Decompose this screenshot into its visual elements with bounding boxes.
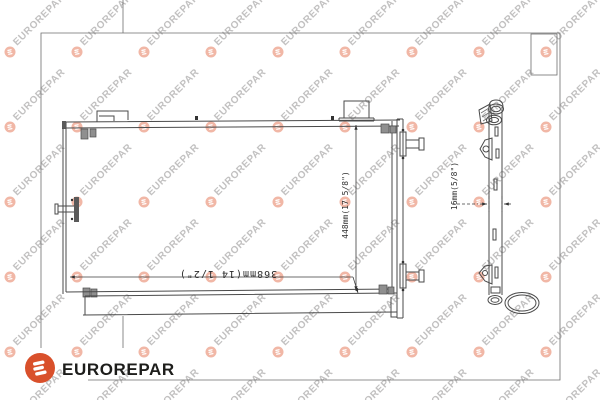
watermark-unit xyxy=(407,367,470,400)
watermark-unit xyxy=(474,0,537,58)
mount-clip xyxy=(81,129,88,139)
side-bracket-upper xyxy=(480,138,492,160)
watermark-unit xyxy=(407,292,470,358)
mount-clip xyxy=(381,124,389,133)
watermark-unit xyxy=(5,142,68,208)
watermark-unit xyxy=(139,292,202,358)
watermark-unit xyxy=(273,142,336,208)
watermark-unit xyxy=(407,217,470,283)
watermark-unit xyxy=(541,217,600,283)
mount-clip xyxy=(379,285,387,294)
watermark-unit xyxy=(206,0,269,58)
top-left-bracket xyxy=(97,111,128,122)
side-view: 16mm(5/8") xyxy=(450,100,539,314)
watermark-unit xyxy=(474,367,537,400)
watermark-unit xyxy=(340,67,403,133)
watermark-layer xyxy=(5,0,600,400)
watermark-unit xyxy=(5,217,68,283)
front-view xyxy=(55,101,424,318)
right-upper-fitting xyxy=(400,129,424,160)
watermark-unit xyxy=(206,292,269,358)
watermark-unit xyxy=(340,367,403,400)
watermark-unit xyxy=(541,0,600,58)
watermark-unit xyxy=(340,0,403,58)
watermark-unit xyxy=(72,67,135,133)
watermark-unit xyxy=(72,217,135,283)
watermark-unit xyxy=(541,67,600,133)
watermark-unit xyxy=(407,0,470,58)
watermark-unit xyxy=(273,292,336,358)
watermark-unit xyxy=(273,367,336,400)
watermark-unit xyxy=(72,0,135,58)
watermark-unit xyxy=(206,67,269,133)
watermark-unit xyxy=(273,67,336,133)
watermark-unit xyxy=(206,367,269,400)
mount-clip xyxy=(90,129,96,137)
catalog-part-image: EUROREPAR xyxy=(0,0,600,400)
watermark-unit xyxy=(139,142,202,208)
technical-drawing: EUROREPAR xyxy=(0,0,600,400)
watermark-unit xyxy=(541,367,600,400)
watermark-unit xyxy=(340,292,403,358)
watermark-unit xyxy=(541,292,600,358)
watermark-unit xyxy=(72,142,135,208)
watermark-unit xyxy=(5,0,68,58)
watermark-unit xyxy=(541,142,600,208)
watermark-unit xyxy=(5,67,68,133)
watermark-unit xyxy=(139,67,202,133)
watermark-unit xyxy=(273,217,336,283)
watermark-unit xyxy=(5,292,68,358)
height-dimension-label: 448mm(17 5/8") xyxy=(341,171,350,238)
depth-dimension-label: 16mm(5/8") xyxy=(450,162,459,210)
brand-logo: EUROREPAR xyxy=(25,353,175,383)
watermark-unit xyxy=(474,142,537,208)
brand-logo-text: EUROREPAR xyxy=(62,360,175,379)
watermark-unit xyxy=(273,0,336,58)
width-dimension-label: 368mm(14 1/2") xyxy=(179,268,277,279)
mount-clip xyxy=(390,126,396,133)
watermark-unit xyxy=(474,67,537,133)
watermark-unit xyxy=(139,0,202,58)
mount-clip xyxy=(388,287,394,294)
watermark-unit xyxy=(72,292,135,358)
watermark-unit xyxy=(206,142,269,208)
watermark-unit xyxy=(407,67,470,133)
watermark-unit xyxy=(407,142,470,208)
